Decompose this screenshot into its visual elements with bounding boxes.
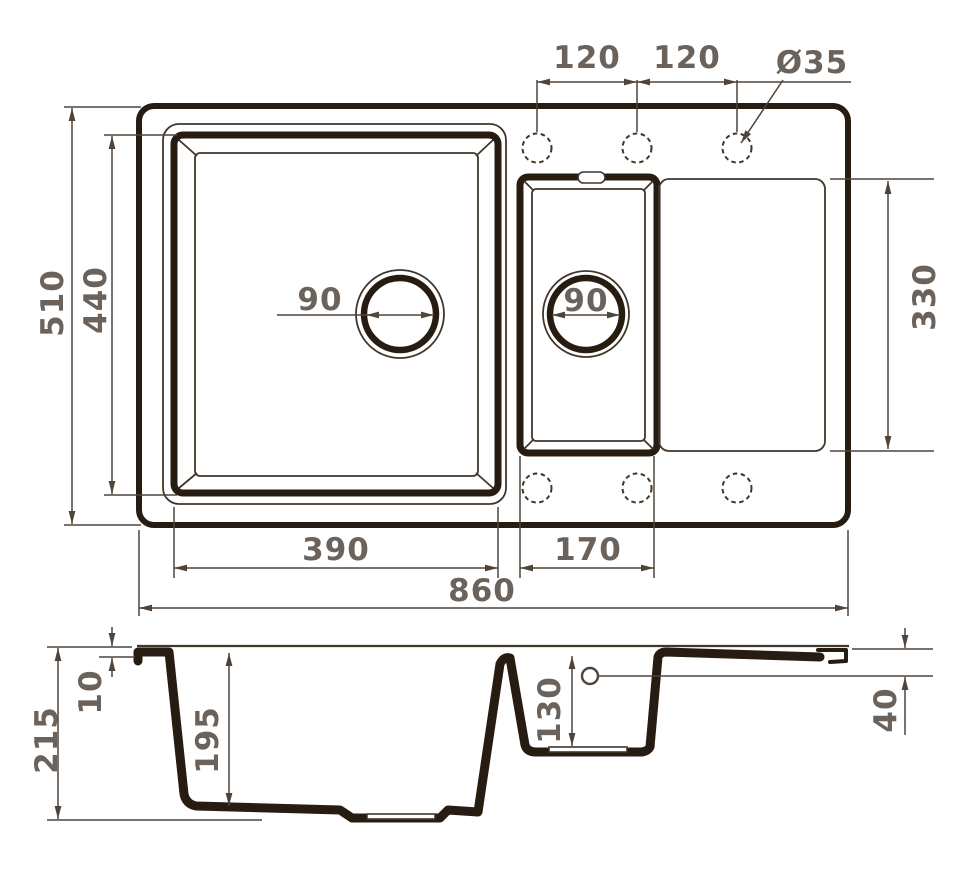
arrowhead: [885, 436, 892, 449]
half-drain-fitting: [549, 747, 627, 752]
dim-label-390: 390: [302, 532, 370, 568]
arrowhead: [724, 79, 737, 86]
dim-label-215: 215: [29, 706, 65, 774]
dim-label-120-right: 120: [653, 40, 721, 76]
faucet-hole-top-2: [623, 134, 652, 163]
sink-outline: [139, 106, 848, 525]
half-bowl-bevel-tl: [524, 181, 534, 191]
half-bowl-bevel-br: [643, 439, 653, 449]
side-view: 215 10 195 130 40: [29, 627, 933, 820]
arrowhead: [902, 635, 909, 648]
arrowhead: [902, 677, 909, 690]
arrowhead: [552, 312, 565, 319]
arrowhead: [641, 565, 654, 572]
faucet-hole-bottom-3: [723, 474, 752, 503]
sink-section-profile: [138, 652, 820, 818]
main-bowl-bevel-tr: [476, 140, 493, 156]
arrowhead: [366, 312, 379, 319]
dim-label-half-drain: 90: [563, 283, 608, 319]
overflow-slot: [578, 172, 605, 183]
top-view: 120 120 Ø35 510 440 330 390 170 860 90 9…: [35, 40, 943, 616]
half-bowl-bevel-tr: [643, 181, 653, 191]
main-bowl-bevel-br: [476, 473, 493, 488]
arrowhead: [55, 648, 62, 661]
main-bowl-bevel-tl: [179, 140, 197, 156]
arrowhead: [109, 658, 116, 671]
dim-label-main-drain: 90: [297, 282, 342, 318]
dim-label-440: 440: [78, 266, 114, 334]
dim-label-860: 860: [448, 573, 516, 609]
main-bowl-bevel-bl: [179, 473, 197, 488]
half-bowl-bevel-bl: [524, 439, 534, 449]
arrowhead: [485, 565, 498, 572]
arrowhead: [69, 511, 76, 524]
arrowhead: [109, 136, 116, 149]
dim-label-hole-diameter: Ø35: [776, 45, 849, 81]
arrowhead: [537, 79, 550, 86]
arrowhead: [569, 656, 576, 669]
main-drain-outer: [356, 270, 444, 358]
dim-label-10: 10: [73, 669, 109, 714]
arrowhead: [569, 733, 576, 746]
arrowhead: [109, 481, 116, 494]
arrowhead: [109, 633, 116, 646]
arrowhead: [520, 565, 533, 572]
dim-label-40: 40: [868, 687, 904, 732]
dim-label-195: 195: [190, 706, 226, 774]
overflow-hole-section: [582, 668, 598, 684]
arrowhead: [885, 181, 892, 194]
dim-label-510: 510: [35, 269, 71, 337]
arrowhead: [226, 653, 233, 666]
drainboard: [659, 179, 825, 451]
faucet-hole-top-3: [723, 134, 752, 163]
main-drain-fitting: [367, 814, 435, 819]
arrowhead: [174, 565, 187, 572]
arrowhead: [624, 79, 637, 86]
dim-label-120-left: 120: [553, 40, 621, 76]
arrowhead: [55, 806, 62, 819]
arrowhead: [607, 312, 620, 319]
dim-label-130: 130: [532, 676, 568, 744]
arrowhead: [421, 312, 434, 319]
arrowhead: [139, 605, 152, 612]
dim-label-330: 330: [907, 263, 943, 331]
arrowhead: [835, 605, 848, 612]
drawing-page: 120 120 Ø35 510 440 330 390 170 860 90 9…: [0, 0, 973, 869]
faucet-hole-bottom-2: [623, 474, 652, 503]
faucet-hole-top-1: [523, 134, 552, 163]
sink-technical-drawing: 120 120 Ø35 510 440 330 390 170 860 90 9…: [0, 0, 973, 869]
arrowhead: [637, 79, 650, 86]
arrowhead: [69, 108, 76, 121]
faucet-hole-bottom-1: [523, 474, 552, 503]
dim-label-170: 170: [554, 532, 622, 568]
